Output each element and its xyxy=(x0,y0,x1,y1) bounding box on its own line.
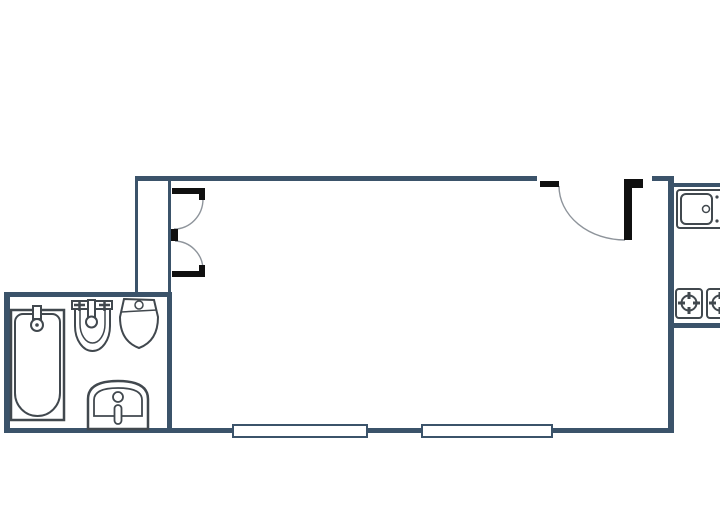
kitchen-sink-dot-bottom xyxy=(715,219,718,222)
floor-plan-page xyxy=(0,0,720,532)
main-door-left-jamb xyxy=(540,181,559,187)
floor-plan-svg xyxy=(0,0,720,532)
entry-door-top-jamb xyxy=(172,188,205,194)
entry-door-bottom-swing-arc xyxy=(175,241,203,269)
entry-closet-outer-line xyxy=(135,181,138,292)
entry-door-top-jamb-tick xyxy=(199,194,205,200)
toilet-flush-button xyxy=(135,301,143,309)
pedestal-basin-slot xyxy=(115,405,122,424)
pedestal-basin-circle xyxy=(113,392,123,402)
washbasin-faucet-stem xyxy=(88,300,95,318)
window-2 xyxy=(422,425,552,437)
washbasin-faucet-circle xyxy=(86,317,97,328)
main-door-leaf xyxy=(624,179,632,240)
entry-door-top-swing-arc xyxy=(174,199,203,229)
window-1 xyxy=(233,425,367,437)
kitchen-top-wall xyxy=(672,183,720,187)
kitchen-bottom-wall xyxy=(672,323,720,328)
entry-closet-inner-line xyxy=(168,181,171,292)
kitchen-sink-drain xyxy=(703,206,710,213)
entry-door-middle-post xyxy=(171,229,178,241)
entry-door-bottom-jamb xyxy=(172,271,205,277)
bathtub-faucet xyxy=(33,306,41,319)
bathtub-drain-dot xyxy=(35,323,39,327)
top-wall-left xyxy=(135,176,537,181)
bathroom-right-wall xyxy=(167,292,172,433)
bathroom-left-wall xyxy=(4,292,10,433)
bathroom-top-wall xyxy=(4,292,172,297)
entry-door-bottom-jamb-tick xyxy=(199,265,205,271)
kitchen-sink-dot-top xyxy=(715,195,718,198)
main-door-swing-arc xyxy=(559,186,625,240)
right-wall xyxy=(668,176,674,433)
